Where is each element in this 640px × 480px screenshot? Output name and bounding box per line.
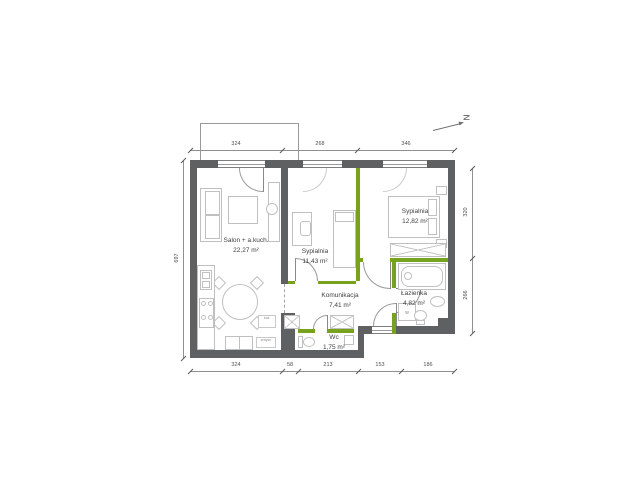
dimension-tick <box>452 369 458 375</box>
dimension-label: 324 <box>231 362 240 368</box>
room-area: 4,82 m² <box>401 299 427 309</box>
kitchen-island-line <box>239 337 240 349</box>
stove-burner <box>201 301 206 306</box>
dimension-label: 266 <box>463 290 469 299</box>
room-label-salon: Salon + a.kuch. 22,27 m² <box>224 236 269 256</box>
kitchen-sink-bowl <box>202 281 210 288</box>
wall-top-segment <box>342 160 383 168</box>
window-bedroom-2 <box>383 160 427 168</box>
sofa-cushion <box>205 191 220 215</box>
fridge-label: lod. <box>264 315 270 320</box>
green-wall-bathroom-left <box>392 262 396 288</box>
wall-right <box>448 160 455 334</box>
north-arrow-head <box>459 120 465 125</box>
dimension-line-bottom <box>190 371 454 372</box>
dishwasher-box: zmyw. <box>256 337 276 348</box>
dimension-label: 697 <box>174 253 180 262</box>
wc-sink <box>344 335 354 345</box>
duct-shaft <box>438 318 448 332</box>
room-label-bathroom: Łazienka 4,82 m² <box>401 289 427 309</box>
window-salon <box>218 160 265 168</box>
room-label-hall: Komunikacja 7,41 m² <box>321 291 358 311</box>
wall-top-segment <box>265 160 303 168</box>
wardrobe <box>390 243 446 257</box>
dimension-label: 58 <box>287 362 293 368</box>
pillow <box>428 199 437 216</box>
dining-table <box>222 284 258 320</box>
dishwasher-label: zmyw. <box>260 337 271 342</box>
room-area: 12,82 m² <box>402 217 428 227</box>
green-wall-wc-top <box>298 329 315 333</box>
wall-step-vertical <box>358 326 364 358</box>
green-wall-hall-top <box>318 281 356 284</box>
floor-plan-canvas: lod. zmyw. w Salon + a.kuch. 22,27 m² Sy… <box>0 0 640 480</box>
plant <box>266 203 278 215</box>
entrance-door-swing <box>373 303 396 326</box>
pillow <box>335 212 354 222</box>
green-wall-bedroom2-bottom <box>390 258 448 262</box>
room-label-bedroom-1: Sypialnia 11,43 m² <box>302 247 328 267</box>
wall-left <box>190 160 197 358</box>
kitchen-sink-bowl <box>202 272 210 279</box>
room-area: 7,41 m² <box>321 301 358 311</box>
balcony-door-swing <box>239 168 263 192</box>
room-name: Wc <box>323 333 345 343</box>
wc-door-leaf <box>327 315 328 329</box>
dimension-line-left <box>183 160 184 358</box>
dimension-label: 324 <box>231 141 240 147</box>
nightstand <box>436 186 447 195</box>
dimension-line-right <box>472 168 473 333</box>
sofa-cushion <box>205 215 220 239</box>
dimension-tick <box>470 331 476 337</box>
open-passage-dashed <box>284 284 285 313</box>
stove-burner <box>201 315 206 320</box>
window-swing-bedroom-2 <box>383 168 407 192</box>
entrance-door-leaf <box>396 303 397 326</box>
fridge-box: lod. <box>258 315 276 328</box>
window-swing-bedroom-1 <box>303 168 327 192</box>
dimension-label: 186 <box>423 362 432 368</box>
room-label-wc: Wc 1,75 m² <box>323 333 345 353</box>
bathtub-drain <box>404 272 412 280</box>
bedroom2-door-leaf <box>390 262 391 289</box>
stove-burner <box>208 301 213 306</box>
room-area: 1,75 m² <box>323 343 345 353</box>
hall-wardrobe <box>284 315 300 329</box>
room-name: Sypialnia <box>302 247 328 257</box>
dimension-label: 213 <box>323 362 332 368</box>
wall-salon-divider <box>281 168 288 284</box>
north-label: N <box>461 115 470 121</box>
pillow <box>428 218 437 235</box>
coffee-table <box>228 196 258 224</box>
bedroom2-door-swing <box>363 262 390 289</box>
toilet-wc <box>303 337 315 347</box>
balcony-outline <box>200 123 299 163</box>
wc-door-swing <box>313 315 327 329</box>
room-name: Salon + a.kuch. <box>224 236 269 246</box>
wall-bottom-right-segment <box>364 326 372 334</box>
toilet-tank <box>416 320 425 325</box>
green-wall-bedroom-divider <box>356 168 360 281</box>
green-wall-hall-top <box>288 281 295 284</box>
desk-chair <box>300 221 311 236</box>
dimension-tick <box>452 148 458 154</box>
balcony-door-leaf <box>263 168 264 192</box>
dimension-tick <box>181 356 187 362</box>
stove-burner <box>208 315 213 320</box>
dimension-label: 153 <box>375 362 384 368</box>
room-area: 22,27 m² <box>224 246 269 256</box>
room-name: Komunikacja <box>321 291 358 301</box>
north-arrow-line <box>433 123 460 131</box>
dimension-label: 268 <box>315 141 324 147</box>
room-label-bedroom-2: Sypialnia 12,82 m² <box>402 207 428 227</box>
hall-wardrobe <box>330 315 354 329</box>
dimension-label: 320 <box>463 207 469 216</box>
bathroom-sink <box>430 296 445 307</box>
room-name: Łazienka <box>401 289 427 299</box>
room-name: Sypialnia <box>402 207 428 217</box>
room-area: 11,43 m² <box>302 257 328 267</box>
window-bedroom-1 <box>303 160 342 168</box>
dimension-line-top <box>190 150 455 151</box>
dimension-label: 346 <box>401 141 410 147</box>
washer-label: w <box>405 310 409 316</box>
